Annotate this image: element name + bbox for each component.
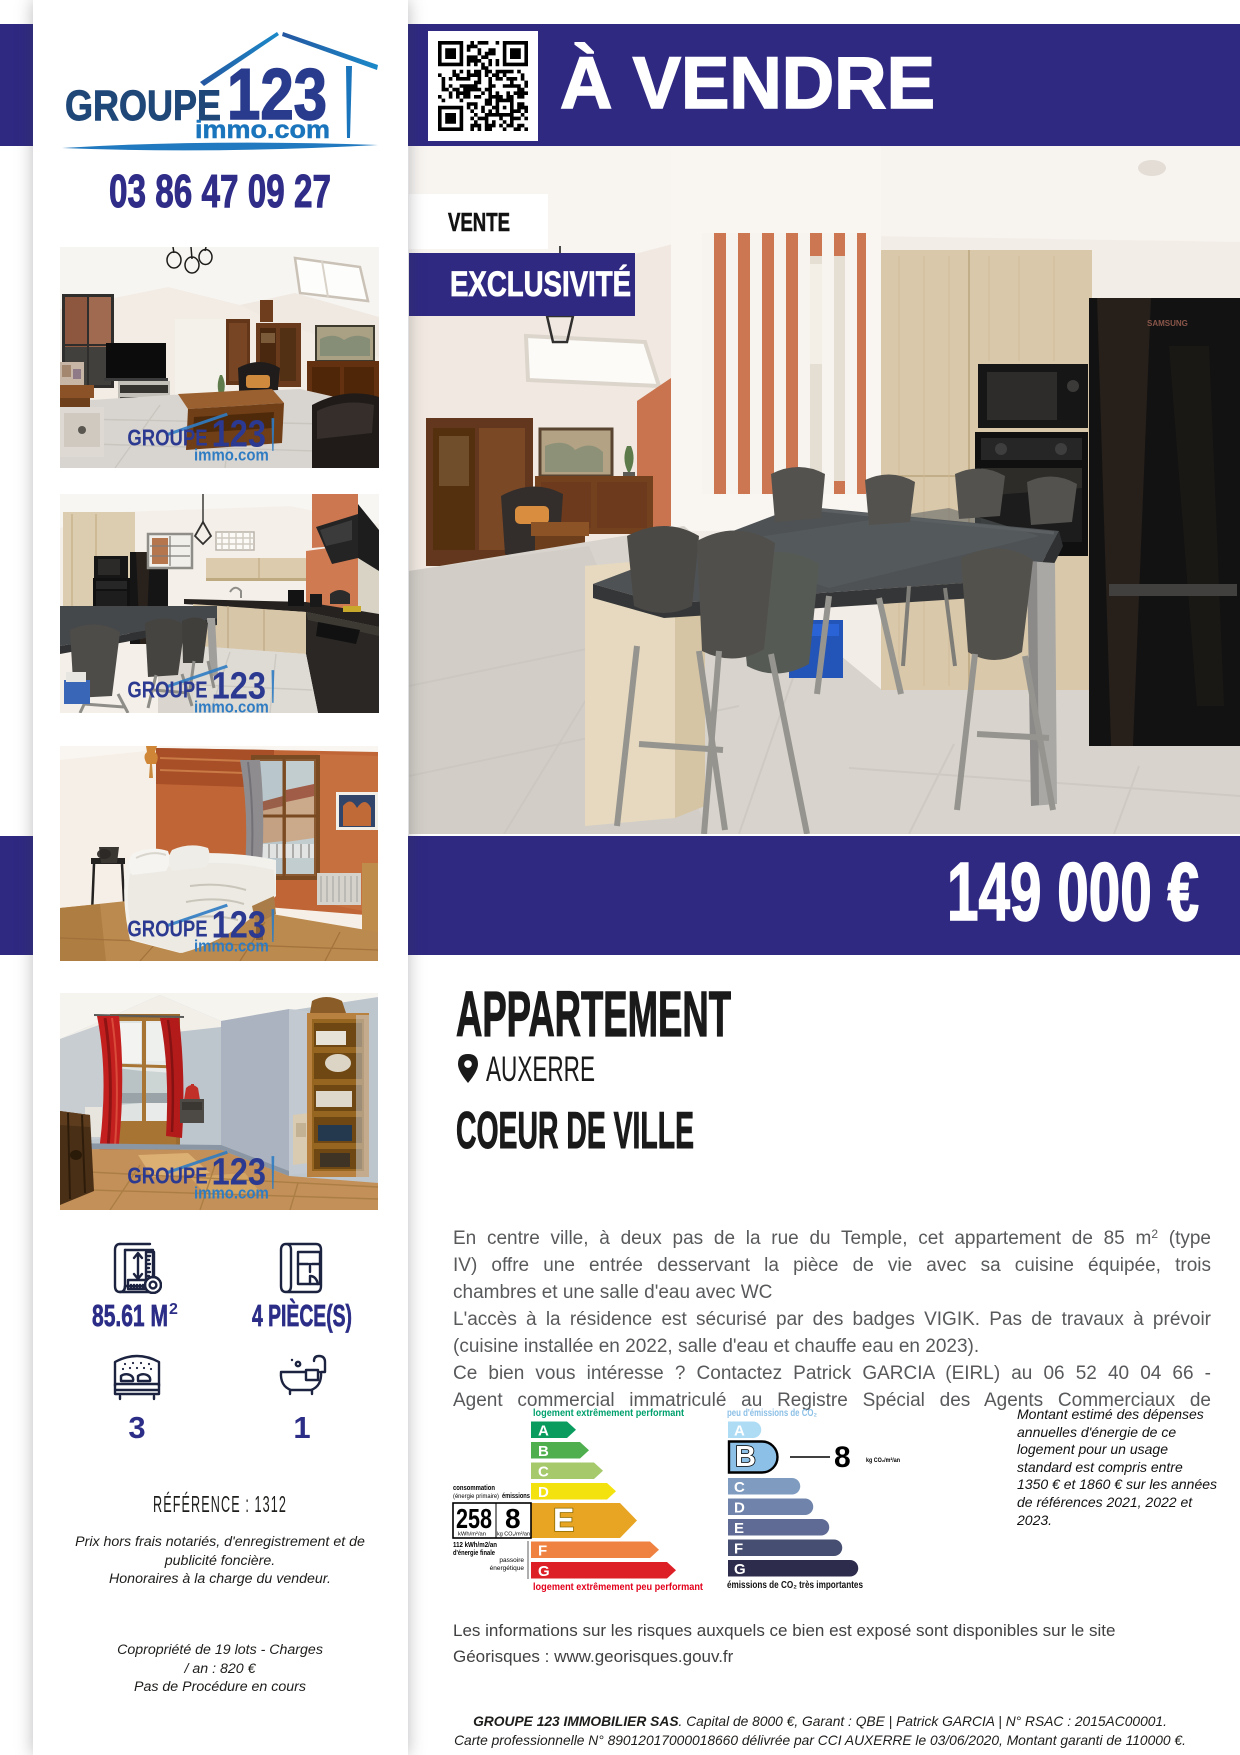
svg-text:B: B: [735, 1441, 756, 1473]
svg-text:112 kWh/m2/an: 112 kWh/m2/an: [453, 1542, 497, 1549]
svg-text:énergétique: énergétique: [490, 1565, 525, 1572]
svg-text:85.61 M: 85.61 M: [92, 1298, 168, 1333]
svg-text:D: D: [538, 1484, 549, 1501]
svg-text:D: D: [734, 1500, 745, 1517]
svg-text:149 000 €: 149 000 €: [947, 845, 1199, 938]
svg-text:8: 8: [505, 1503, 521, 1534]
svg-text:émissions de CO₂ très importan: émissions de CO₂ très importantes: [727, 1580, 863, 1591]
svg-text:G: G: [734, 1561, 746, 1578]
svg-text:8: 8: [834, 1441, 851, 1474]
svg-text:(énergie primaire): (énergie primaire): [453, 1493, 499, 1500]
svg-text:G: G: [538, 1563, 550, 1580]
svg-text:consommation: consommation: [453, 1485, 495, 1492]
svg-text:SAMSUNG: SAMSUNG: [1147, 319, 1188, 328]
svg-text:258: 258: [456, 1503, 492, 1534]
svg-text:passoire: passoire: [499, 1557, 524, 1564]
svg-text:kg CO₂/m²/an: kg CO₂/m²/an: [866, 1457, 900, 1464]
svg-text:RÉFÉRENCE : 1312: RÉFÉRENCE : 1312: [153, 1491, 287, 1517]
svg-text:C: C: [734, 1479, 745, 1496]
svg-text:À VENDRE: À VENDRE: [560, 43, 935, 124]
svg-text:immo.com: immo.com: [195, 116, 330, 144]
svg-text:F: F: [538, 1543, 547, 1560]
svg-text:kg CO₂/m²/an: kg CO₂/m²/an: [497, 1532, 530, 1538]
svg-text:AUXERRE: AUXERRE: [486, 1050, 595, 1089]
svg-text:VENTE: VENTE: [448, 207, 510, 237]
svg-text:logement extrêmement peu perfo: logement extrêmement peu performant: [533, 1582, 704, 1593]
svg-text:1: 1: [293, 1410, 310, 1445]
svg-text:C: C: [538, 1464, 549, 1481]
svg-text:d'énergie finale: d'énergie finale: [453, 1550, 495, 1557]
svg-text:APPARTEMENT: APPARTEMENT: [456, 978, 731, 1046]
svg-text:kWh/m²/an: kWh/m²/an: [458, 1532, 486, 1538]
svg-text:A: A: [538, 1423, 549, 1440]
svg-text:4 PIÈCE(S): 4 PIÈCE(S): [252, 1298, 352, 1333]
svg-text:peu d'émissions de CO₂: peu d'émissions de CO₂: [727, 1408, 817, 1419]
svg-text:COEUR DE VILLE: COEUR DE VILLE: [456, 1102, 694, 1160]
svg-text:2: 2: [169, 1301, 178, 1318]
svg-text:logement extrêmement performan: logement extrêmement performant: [533, 1408, 685, 1419]
svg-text:émissions: émissions: [502, 1493, 530, 1500]
svg-text:A: A: [734, 1423, 745, 1440]
svg-text:EXCLUSIVITÉ: EXCLUSIVITÉ: [450, 264, 631, 304]
svg-text:B: B: [538, 1443, 549, 1460]
svg-text:E: E: [734, 1520, 744, 1537]
svg-text:03 86 47 09 27: 03 86 47 09 27: [109, 168, 331, 217]
svg-text:E: E: [553, 1502, 574, 1538]
svg-text:F: F: [734, 1541, 743, 1558]
svg-text:3: 3: [128, 1410, 145, 1445]
